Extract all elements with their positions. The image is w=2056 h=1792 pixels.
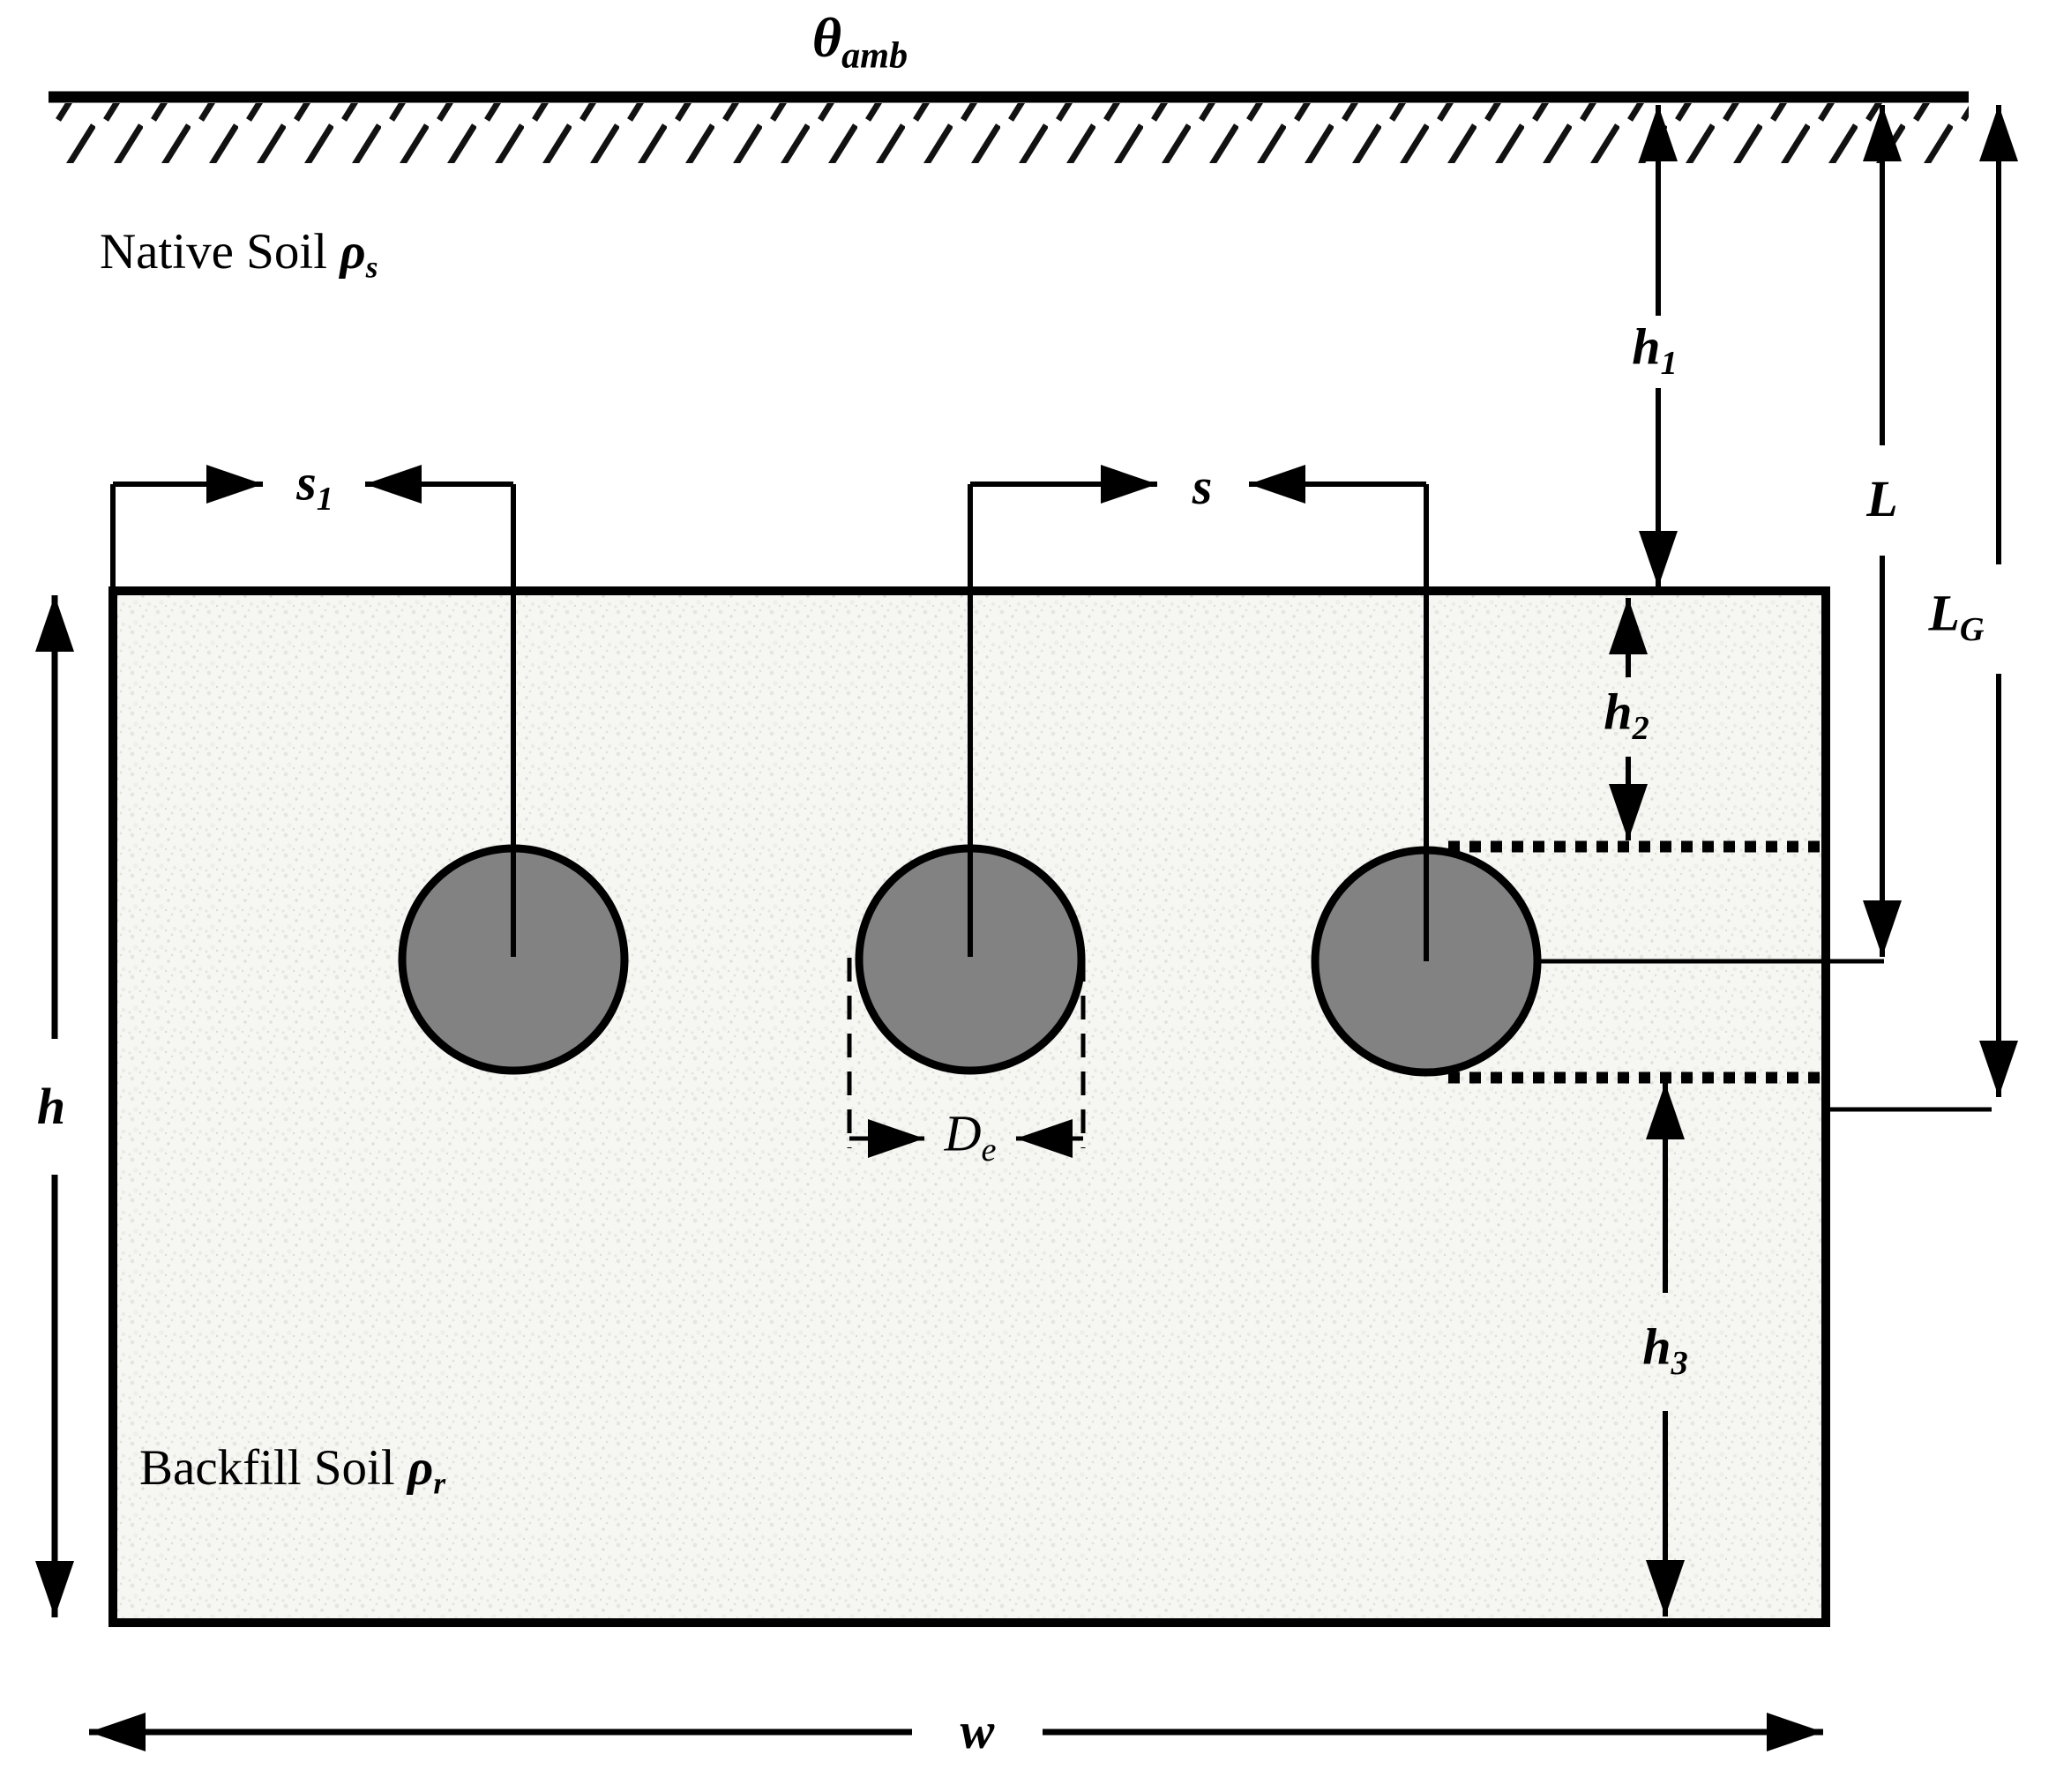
dim-LG-label: LG [1928, 588, 1984, 647]
dim-h2-label: h2 [1604, 687, 1649, 746]
dim-de-label: De [945, 1109, 997, 1168]
dim-h3-label: h3 [1642, 1322, 1687, 1381]
native-soil-label: Native Soil ρs [100, 227, 378, 283]
dim-L-label: L [1866, 474, 1897, 525]
backfill-soil-label: Backfill Soil ρr [139, 1443, 445, 1499]
dim-h1-label: h1 [1632, 322, 1677, 381]
ground-hatching [49, 103, 1969, 163]
dim-h-label: h [37, 1081, 65, 1132]
cable-trench-cross-section-diagram: θamb Native Soil ρs Backfill Soil ρr s1 … [0, 0, 2056, 1792]
ambient-temperature-label: θamb [812, 10, 908, 75]
dim-s-label: s [1192, 461, 1213, 512]
dim-s1-label: s1 [296, 458, 333, 517]
dim-w-label: w [961, 1706, 995, 1757]
